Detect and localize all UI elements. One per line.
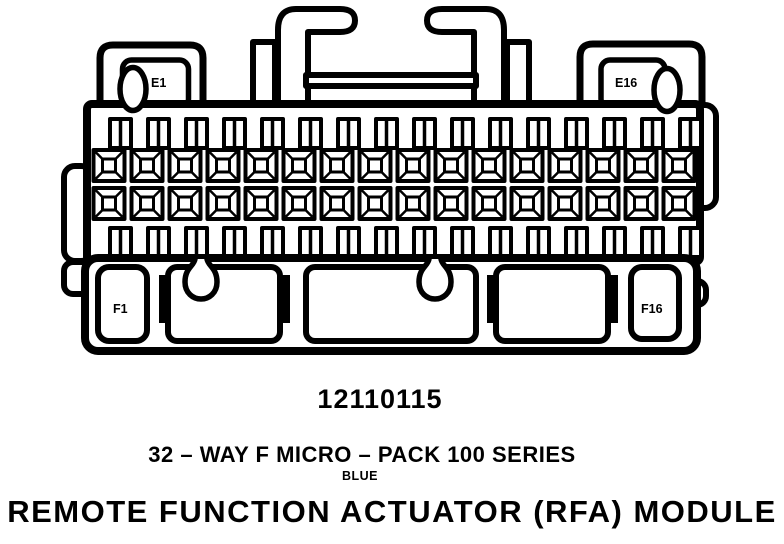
terminal-slot [414,119,435,148]
terminal-square [94,150,125,181]
terminal-slot [490,228,511,257]
terminal-square [588,150,619,181]
terminal-slot [414,228,435,257]
terminal-square [588,188,619,219]
terminal-square [664,188,695,219]
terminal-slot [642,228,663,257]
teardrop-loop [419,259,451,299]
terminal-slot [642,119,663,148]
terminal-square [132,188,163,219]
latch-cross-bar [306,75,476,86]
terminal-slot [604,119,625,148]
terminal-slot [148,119,169,148]
terminal-slot [300,228,321,257]
index-hole-e16 [654,69,680,112]
terminal-slot [110,228,131,257]
connector-color: BLUE [342,469,378,483]
terminal-slot [224,119,245,148]
latch-right-block [507,42,529,104]
index-hole-e1 [120,68,146,111]
terminal-slot [528,228,549,257]
terminal-slot [452,119,473,148]
terminal-slot [528,119,549,148]
terminal-slot [148,228,169,257]
terminal-slot [566,119,587,148]
diagram-page: E1 E16 F1 F16 12110115 32 – WAY F MICRO … [0,0,784,544]
latch-assembly [253,9,529,104]
terminal-square [398,150,429,181]
terminal-square [474,150,505,181]
module-title: REMOTE FUNCTION ACTUATOR (RFA) MODULE [7,494,777,530]
terminal-slot [566,228,587,257]
terminal-slot [110,119,131,148]
terminal-slot [338,228,359,257]
terminal-square [208,150,239,181]
terminal-square [284,150,315,181]
cavity-label-f1: F1 [113,302,128,316]
terminal-square [436,188,467,219]
terminal-square [246,188,277,219]
terminal-slot [680,228,701,257]
terminal-slot [680,119,701,148]
cavity-label-e16: E16 [615,76,637,90]
terminal-square [322,188,353,219]
series-description: 32 – WAY F MICRO – PACK 100 SERIES [148,442,575,468]
terminal-square [626,188,657,219]
terminal-square [550,188,581,219]
terminal-slot [376,119,397,148]
terminal-square [360,188,391,219]
terminal-slot [186,119,207,148]
terminal-slot [376,228,397,257]
cavity-label-f16: F16 [641,302,663,316]
panel-4 [496,267,608,341]
terminal-square [550,150,581,181]
terminal-slot [262,228,283,257]
cavity-label-e1: E1 [151,76,166,90]
terminal-square [512,188,543,219]
terminal-slot [490,119,511,148]
terminal-slot [186,228,207,257]
terminal-square [246,150,277,181]
terminal-square [398,188,429,219]
teardrop-loop [185,259,217,299]
terminal-square [132,150,163,181]
terminal-slot [452,228,473,257]
terminal-square [512,150,543,181]
terminal-square [284,188,315,219]
terminal-square [360,150,391,181]
terminal-square [474,188,505,219]
terminal-square [170,150,201,181]
terminal-grid [94,119,702,257]
terminal-square [170,188,201,219]
terminal-slot [300,119,321,148]
terminal-square [626,150,657,181]
terminal-square [208,188,239,219]
latch-left-block [253,42,275,104]
terminal-slot [338,119,359,148]
connector-diagram: E1 E16 F1 F16 [0,0,784,368]
part-number: 12110115 [317,384,442,415]
terminal-slot [604,228,625,257]
terminal-square [322,150,353,181]
terminal-slot [224,228,245,257]
terminal-slot [262,119,283,148]
terminal-square [94,188,125,219]
terminal-square [664,150,695,181]
terminal-square [436,150,467,181]
